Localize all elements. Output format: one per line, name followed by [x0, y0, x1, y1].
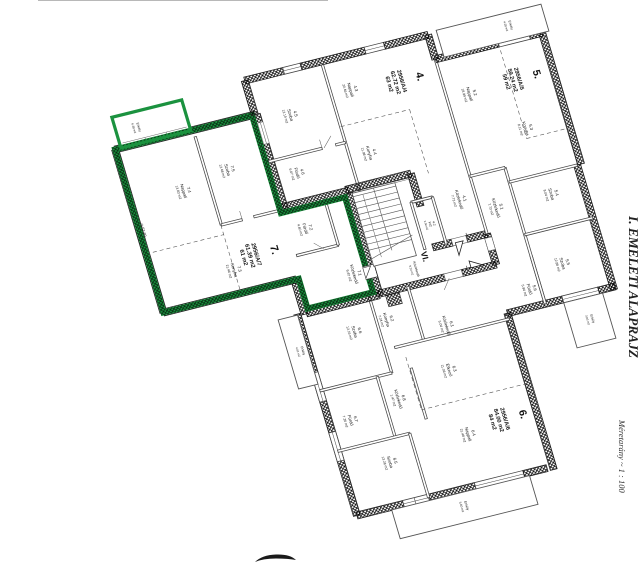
svg-text:Méretarány ~ 1 : 100: Méretarány ~ 1 : 100 — [617, 419, 627, 493]
svg-text:I. EMELETI ALAPRAJZ: I. EMELETI ALAPRAJZ — [626, 215, 640, 358]
